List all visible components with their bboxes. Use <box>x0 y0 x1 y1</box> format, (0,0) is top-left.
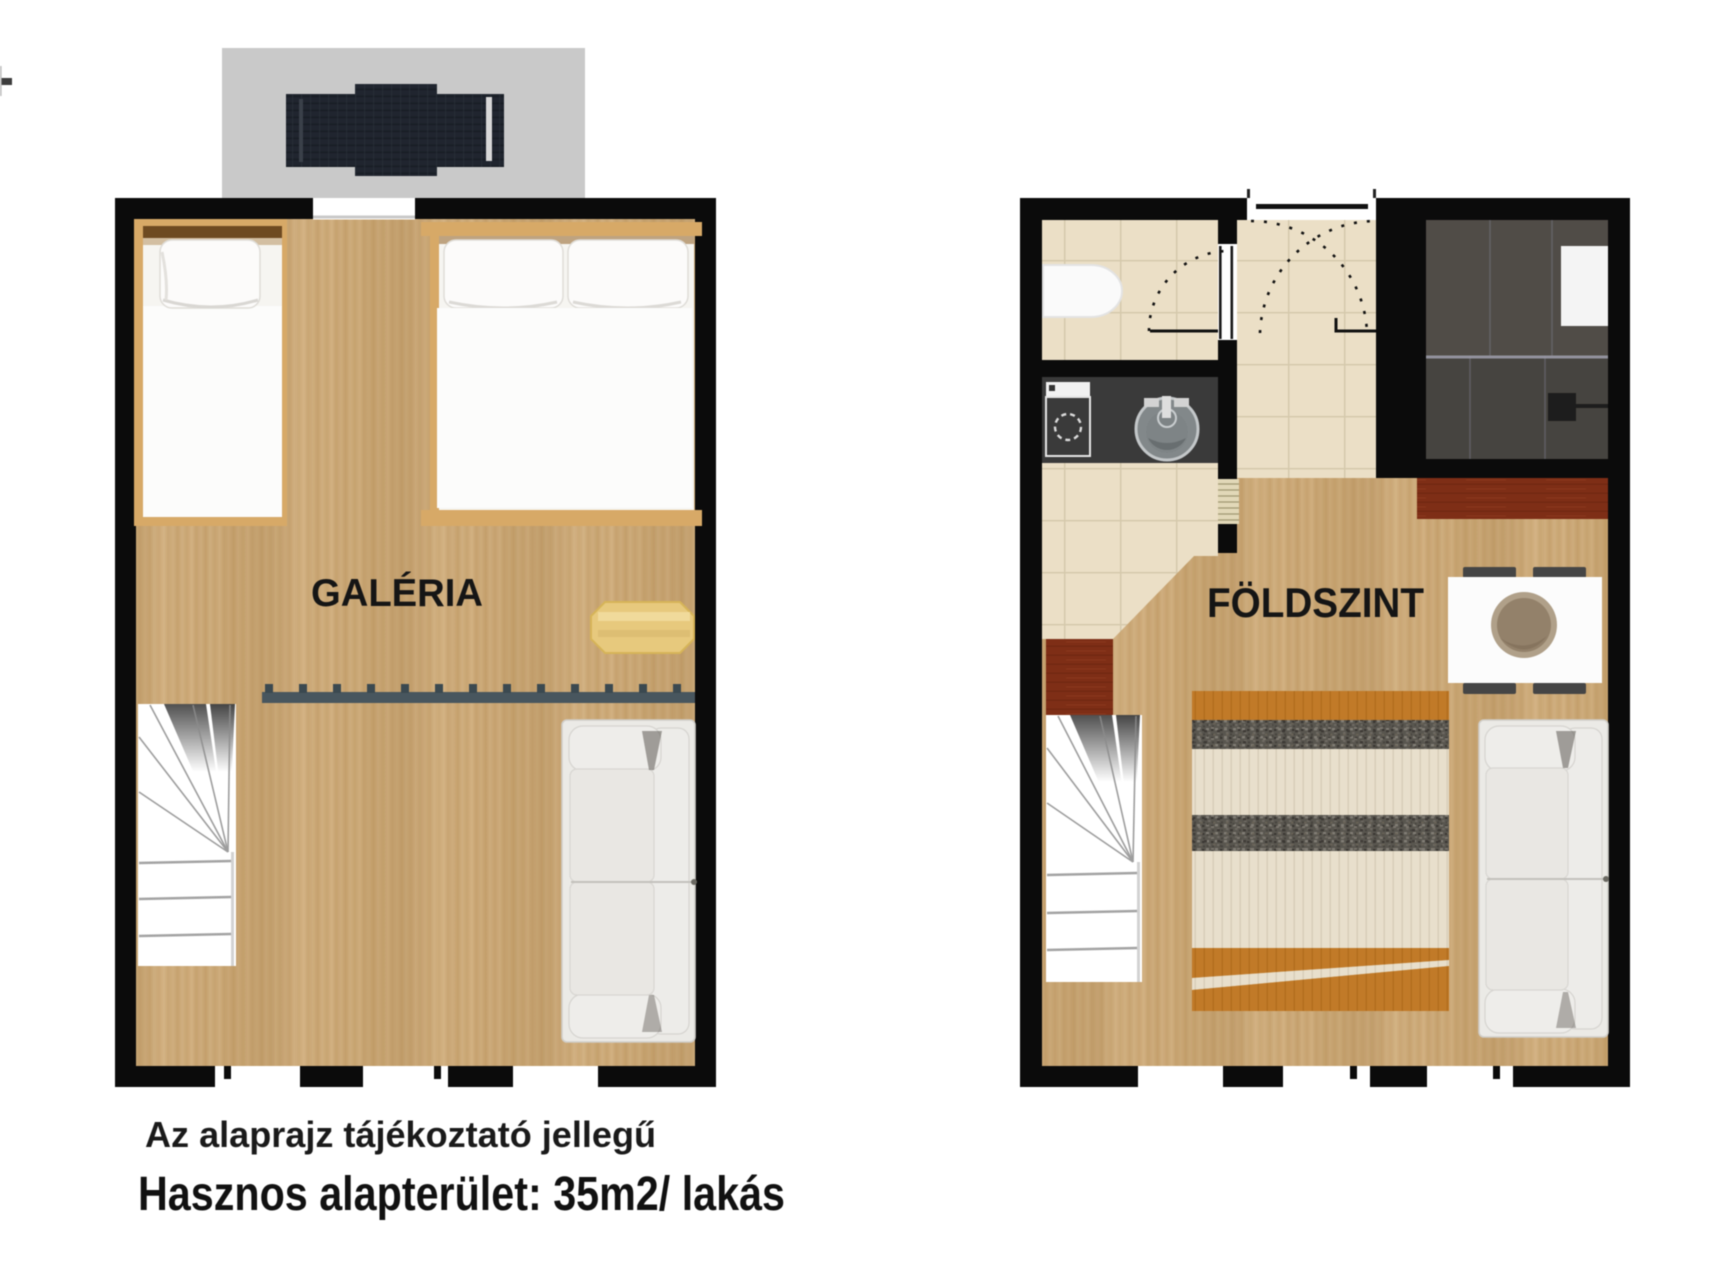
svg-text:GALÉRIA: GALÉRIA <box>311 571 483 615</box>
svg-text:Az alaprajz tájékoztató jelleg: Az alaprajz tájékoztató jellegű <box>145 1114 656 1155</box>
svg-text:Hasznos alapterület: 35m2/ lak: Hasznos alapterület: 35m2/ lakás <box>138 1168 785 1221</box>
svg-text:FÖLDSZINT: FÖLDSZINT <box>1207 579 1424 626</box>
